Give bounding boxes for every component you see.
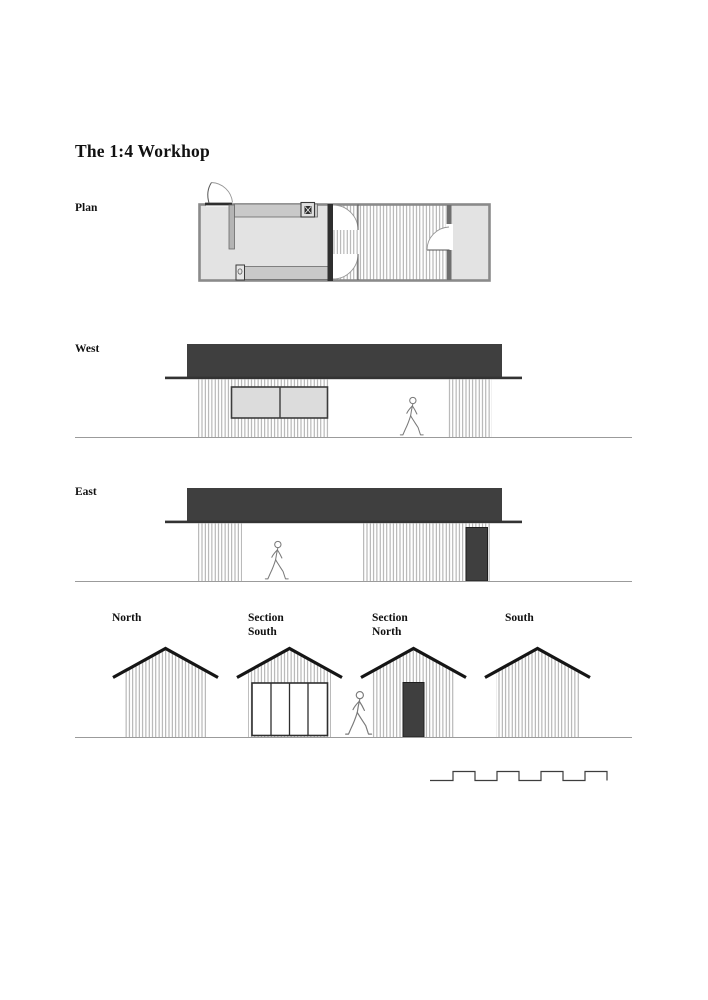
section-north-door — [403, 683, 424, 738]
plan-drawing — [199, 183, 490, 282]
east-eave-line — [165, 521, 522, 524]
appliance-unit — [236, 265, 245, 280]
workbench-bottom — [244, 267, 330, 280]
entry-door-swing-arc — [212, 183, 233, 203]
west-cladding-right — [448, 380, 492, 438]
plan-central-wall — [328, 204, 334, 281]
west-roof-slab — [187, 344, 502, 377]
east-roof-slab — [187, 488, 502, 521]
scale-figure-west — [400, 397, 423, 435]
scale-figure-gables — [346, 692, 372, 735]
plan-partition — [229, 205, 235, 249]
west-eave-line — [165, 377, 522, 380]
cladding-profile-drawing — [430, 772, 607, 781]
east-elevation-drawing — [75, 488, 632, 582]
entry-door-leaf — [208, 183, 212, 204]
architectural-drawings — [0, 0, 708, 1000]
east-cladding-left — [197, 524, 242, 582]
gable-views-drawing — [75, 649, 632, 738]
store-room-fill — [449, 205, 490, 280]
batten-profile-line — [430, 772, 607, 781]
scale-figure-east — [265, 541, 288, 579]
west-elevation-drawing — [75, 344, 632, 438]
drawing-sheet: The 1:4 Workhop Plan West East North Sec… — [0, 0, 708, 1000]
east-door — [466, 528, 488, 582]
